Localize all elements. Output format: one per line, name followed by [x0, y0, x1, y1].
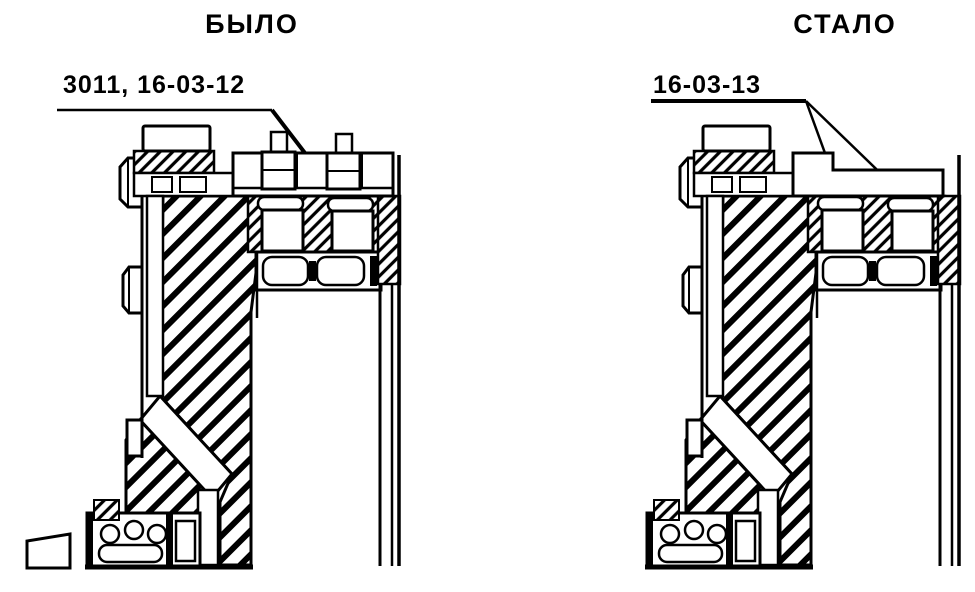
- panel-after-title: СТАЛО: [793, 9, 896, 39]
- axle-end-piece: [27, 534, 70, 568]
- panel-before-part-label: 3011, 16-03-12: [63, 71, 245, 99]
- technical-diagram: БЫЛО 3011, 16-03-12 СТАЛО 16-: [0, 0, 975, 592]
- panel-before: БЫЛО 3011, 16-03-12: [27, 9, 400, 568]
- panel-after: СТАЛО 16-03-13: [645, 9, 960, 567]
- figure-before-after: БЫЛО 3011, 16-03-12 СТАЛО 16-: [0, 0, 975, 592]
- panel-before-title: БЫЛО: [205, 9, 299, 39]
- drawing-after: [645, 126, 960, 567]
- panel-after-part-label: 16-03-13: [653, 71, 761, 99]
